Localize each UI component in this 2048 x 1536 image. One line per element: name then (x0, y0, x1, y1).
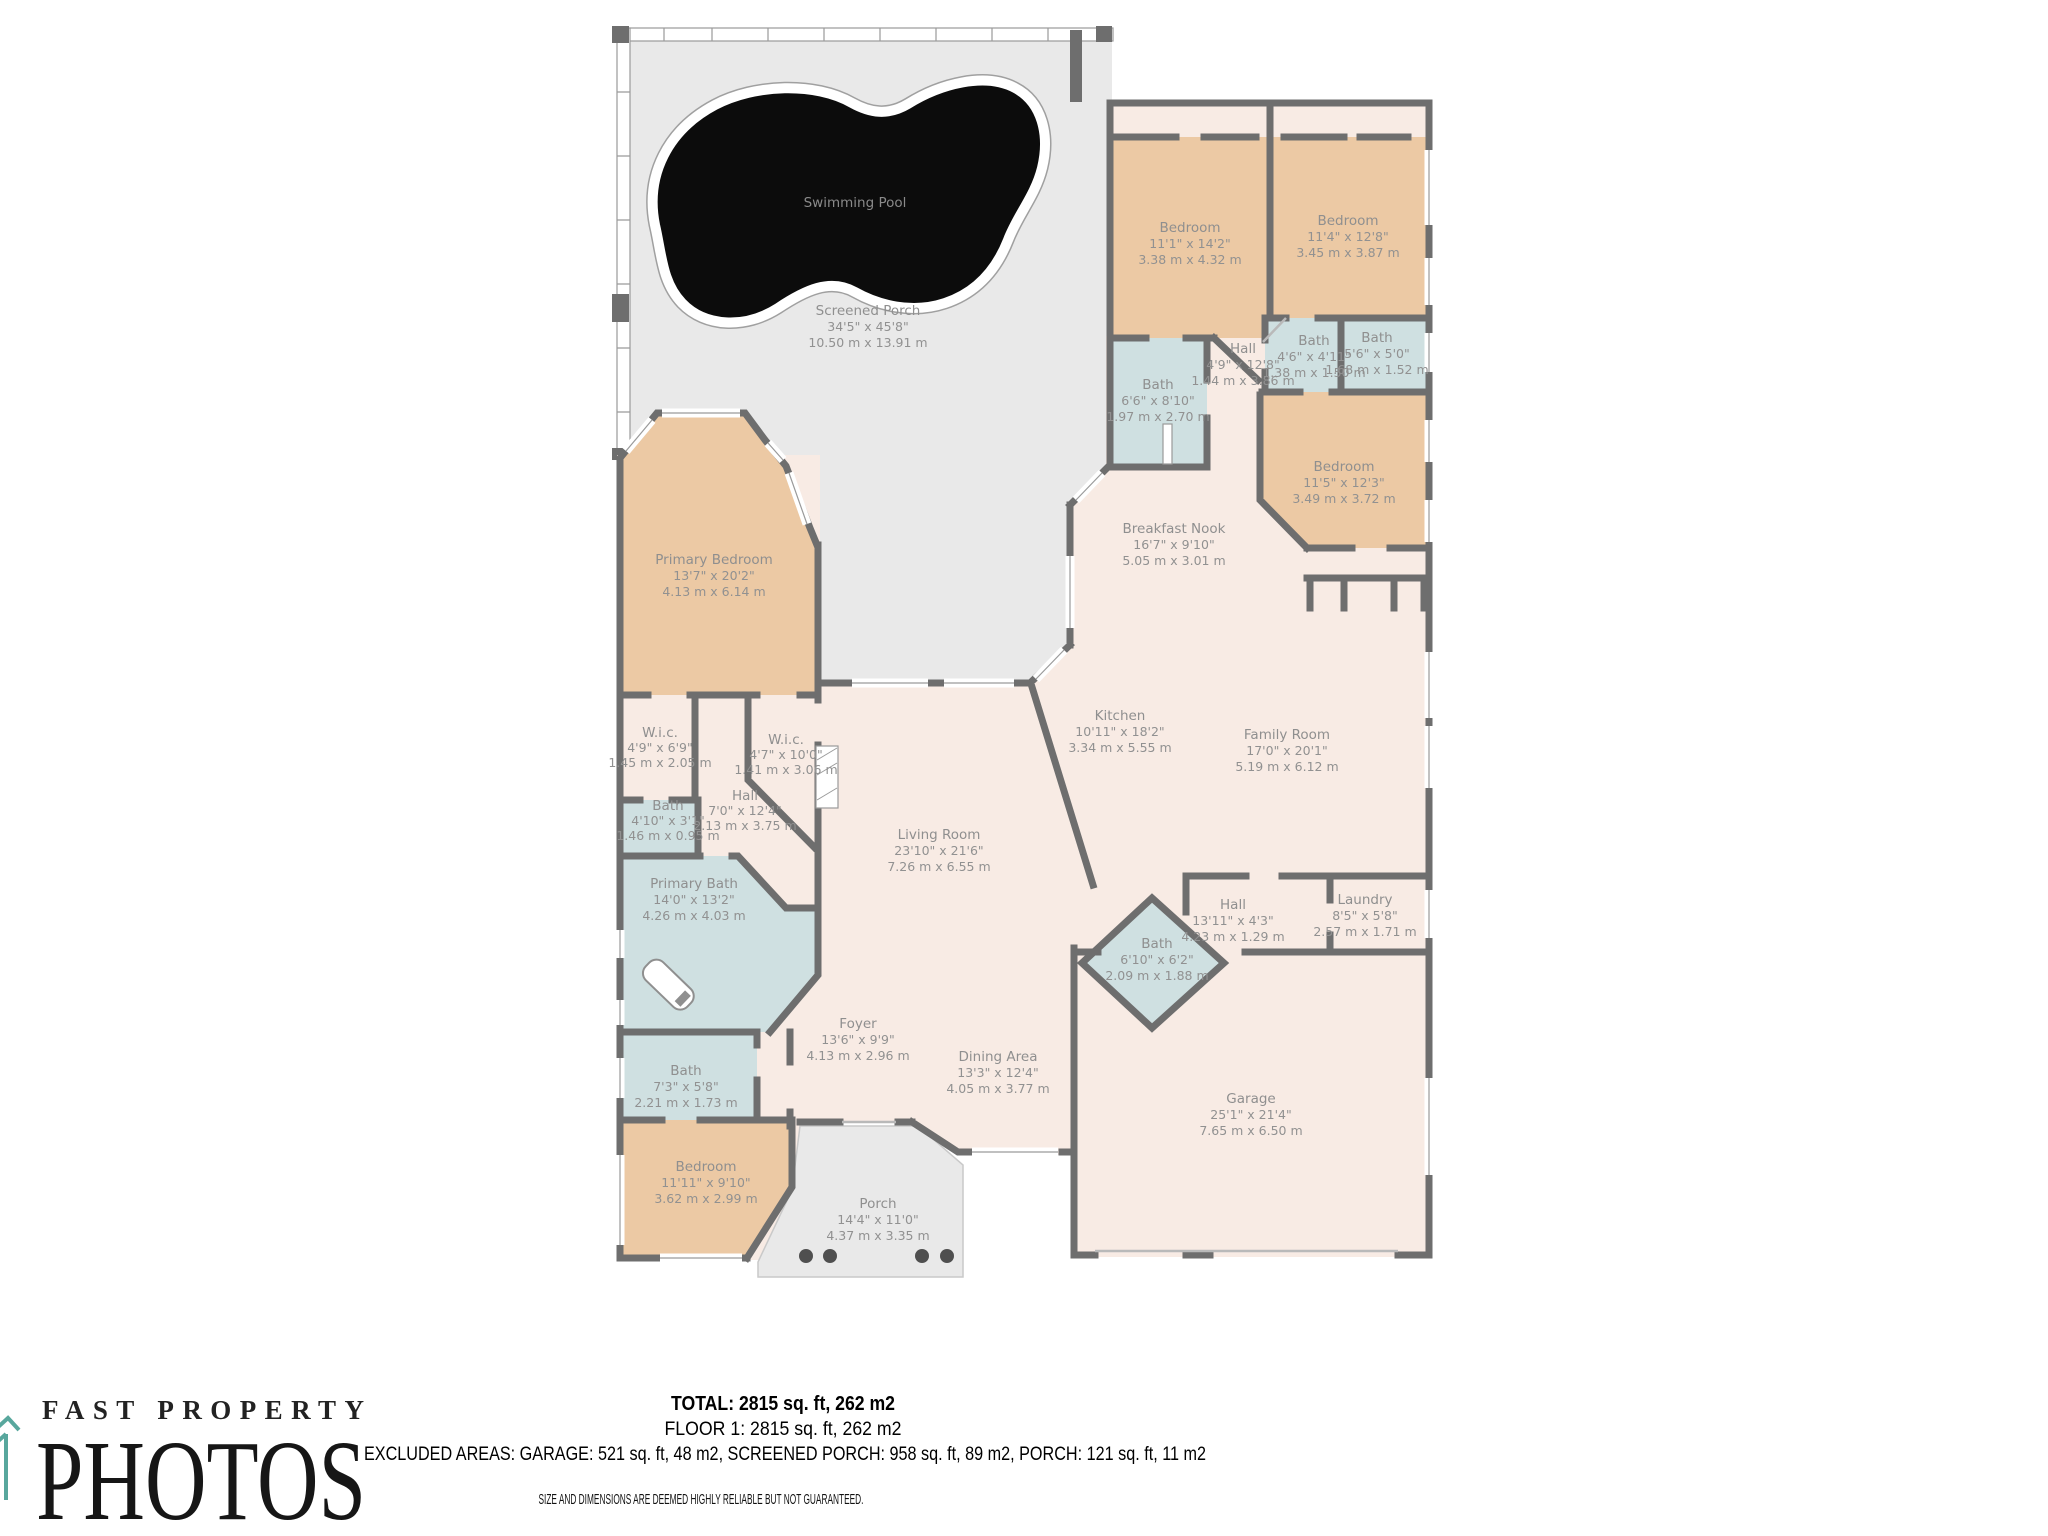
room-label-wic-a: W.i.c. (642, 725, 678, 741)
room-label-bedroom-a: Bedroom (1159, 220, 1220, 236)
room-dims-m: 1.68 m x 1.52 m (1325, 362, 1428, 377)
porch-post (1070, 30, 1082, 102)
room-label-bath-c: Bath (1142, 377, 1173, 393)
room-dims-ft: 34'5" x 45'8" (827, 319, 908, 334)
room-dims-m: 3.34 m x 5.55 m (1068, 740, 1171, 755)
room-label-swimming-pool: Swimming Pool (804, 195, 907, 211)
room-dims-ft: 23'10" x 21'6" (894, 843, 983, 858)
room-dims-m: 2.21 m x 1.73 m (634, 1095, 737, 1110)
porch-post (612, 294, 629, 322)
summary-floor: FLOOR 1: 2815 sq. ft, 262 m2 (665, 1419, 902, 1440)
room-label-breakfast-nook: Breakfast Nook (1123, 521, 1226, 537)
room-dims-ft: 17'0" x 20'1" (1246, 743, 1327, 758)
room-dims-m: 7.65 m x 6.50 m (1199, 1123, 1302, 1138)
room-dims-m: 2.57 m x 1.71 m (1313, 924, 1416, 939)
summary-excluded: EXCLUDED AREAS: GARAGE: 521 sq. ft, 48 m… (364, 1444, 1206, 1465)
room-label-dining-area: Dining Area (959, 1049, 1038, 1065)
room-dims-ft: 14'4" x 11'0" (837, 1212, 918, 1227)
room-dims-ft: 13'7" x 20'2" (673, 568, 754, 583)
room-label-laundry: Laundry (1337, 892, 1392, 908)
room-dims-ft: 4'9" x 6'9" (627, 740, 693, 755)
room-dims-ft: 4'10" x 3'1" (631, 813, 704, 828)
room-dims-m: 7.26 m x 6.55 m (887, 859, 990, 874)
porch-column-dot (940, 1249, 954, 1263)
room-label-bath-e: Bath (670, 1063, 701, 1079)
room-label-foyer: Foyer (839, 1016, 877, 1032)
porch-column-dot (799, 1249, 813, 1263)
room-dims-m: 1.46 m x 0.95 m (616, 828, 719, 843)
room-dims-ft: 8'5" x 5'8" (1332, 908, 1398, 923)
screen-band-left (617, 28, 630, 460)
room-dims-m: 4.13 m x 2.96 m (806, 1048, 909, 1063)
floor-plan-page: Swimming Pool Screened Porch 34'5" x 45'… (0, 0, 2048, 1536)
room-dims-m: 1.45 m x 2.05 m (608, 755, 711, 770)
porch-post (612, 26, 629, 43)
room-dims-m: 3.62 m x 2.99 m (654, 1191, 757, 1206)
room-dims-m: 4.37 m x 3.35 m (826, 1228, 929, 1243)
room-dims-ft: 14'0" x 13'2" (653, 892, 734, 907)
floor-plan-canvas: Swimming Pool Screened Porch 34'5" x 45'… (0, 0, 2048, 1536)
room-dims-m: 4.13 m x 6.14 m (662, 584, 765, 599)
room-dims-ft: 10'11" x 18'2" (1075, 724, 1164, 739)
room-dims-ft: 13'11" x 4'3" (1192, 913, 1273, 928)
room-dims-ft: 6'6" x 8'10" (1121, 393, 1194, 408)
summary-total: TOTAL: 2815 sq. ft, 262 m2 (671, 1393, 895, 1415)
room-label-screened-porch: Screened Porch (816, 303, 921, 319)
room-label-bath-a: Bath (1298, 333, 1329, 349)
room-dims-m: 5.19 m x 6.12 m (1235, 759, 1338, 774)
room-label-bedroom-c: Bedroom (1313, 459, 1374, 475)
shower-glass (1163, 424, 1172, 464)
room-dims-ft: 16'7" x 9'10" (1133, 537, 1214, 552)
room-dims-ft: 7'0" x 12'4" (708, 803, 781, 818)
summary-disclaimer: SIZE AND DIMENSIONS ARE DEEMED HIGHLY RE… (539, 1491, 864, 1508)
room-dims-m: 3.49 m x 3.72 m (1292, 491, 1395, 506)
room-label-primary-bedroom: Primary Bedroom (655, 552, 773, 568)
room-dims-ft: 25'1" x 21'4" (1210, 1107, 1291, 1122)
room-dims-m: 2.09 m x 1.88 m (1105, 968, 1208, 983)
logo-text-main: PHOTOS (36, 1417, 366, 1536)
room-label-bedroom-d: Bedroom (675, 1159, 736, 1175)
room-dims-ft: 11'11" x 9'10" (661, 1175, 750, 1190)
room-label-bath-d: Bath (652, 798, 683, 814)
room-label-living-room: Living Room (898, 827, 981, 843)
room-label-kitchen: Kitchen (1095, 708, 1146, 724)
room-label-family-room: Family Room (1244, 727, 1330, 743)
porch-column-dot (915, 1249, 929, 1263)
room-dims-m: 4.23 m x 1.29 m (1181, 929, 1284, 944)
porch-column-dot (823, 1249, 837, 1263)
room-dims-ft: 13'3" x 12'4" (957, 1065, 1038, 1080)
summary-block: TOTAL: 2815 sq. ft, 262 m2 FLOOR 1: 2815… (364, 1393, 1206, 1508)
logo: FAST PROPERTY PHOTOS (0, 1395, 366, 1536)
screen-band-top (617, 28, 1113, 41)
room-dims-ft: 5'6" x 5'0" (1344, 346, 1410, 361)
room-dims-m: 1.41 m x 3.06 m (734, 762, 837, 777)
room-dims-m: 4.05 m x 3.77 m (946, 1081, 1049, 1096)
room-label-bath-f: Bath (1141, 936, 1172, 952)
room-dims-m: 10.50 m x 13.91 m (808, 335, 927, 350)
logo-house-icon (0, 1418, 19, 1500)
room-dims-ft: 4'7" x 10'0" (749, 747, 822, 762)
room-dims-ft: 13'6" x 9'9" (821, 1032, 894, 1047)
room-label-hall-c: Hall (1220, 897, 1246, 913)
room-dims-ft: 11'5" x 12'3" (1303, 475, 1384, 490)
room-label-primary-bath: Primary Bath (650, 876, 738, 892)
room-dims-m: 4.26 m x 4.03 m (642, 908, 745, 923)
room-dims-m: 3.45 m x 3.87 m (1296, 245, 1399, 260)
room-label-garage: Garage (1226, 1091, 1275, 1107)
room-dims-m: 5.05 m x 3.01 m (1122, 553, 1225, 568)
room-label-wic-b: W.i.c. (768, 732, 804, 748)
room-label-hall-a: Hall (1230, 341, 1256, 357)
room-dims-ft: 7'3" x 5'8" (653, 1079, 719, 1094)
room-dims-ft: 11'4" x 12'8" (1307, 229, 1388, 244)
room-dims-m: 1.97 m x 2.70 m (1106, 409, 1209, 424)
room-dims-ft: 11'1" x 14'2" (1149, 236, 1230, 251)
room-dims-m: 3.38 m x 4.32 m (1138, 252, 1241, 267)
room-label-hall-b: Hall (732, 788, 758, 804)
room-label-bedroom-b: Bedroom (1317, 213, 1378, 229)
room-label-porch: Porch (859, 1196, 896, 1212)
porch-post (1096, 26, 1112, 42)
room-label-bath-b: Bath (1361, 330, 1392, 346)
room-dims-ft: 6'10" x 6'2" (1120, 952, 1193, 967)
